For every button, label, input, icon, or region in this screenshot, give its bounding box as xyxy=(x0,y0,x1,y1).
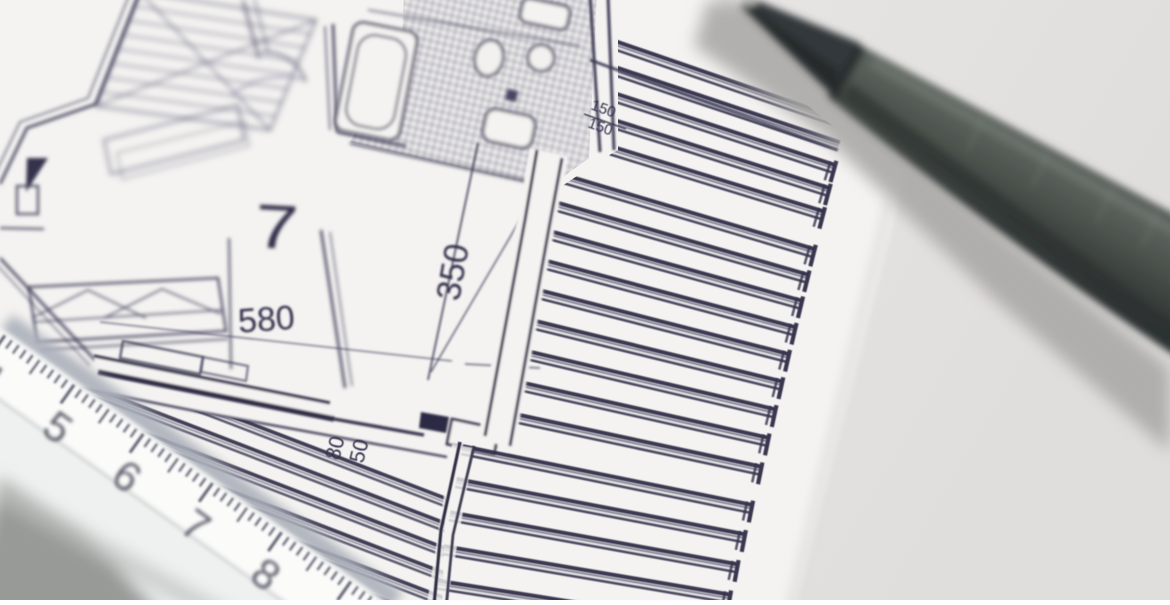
svg-text:580: 580 xyxy=(237,299,296,341)
svg-text:7: 7 xyxy=(253,191,300,263)
